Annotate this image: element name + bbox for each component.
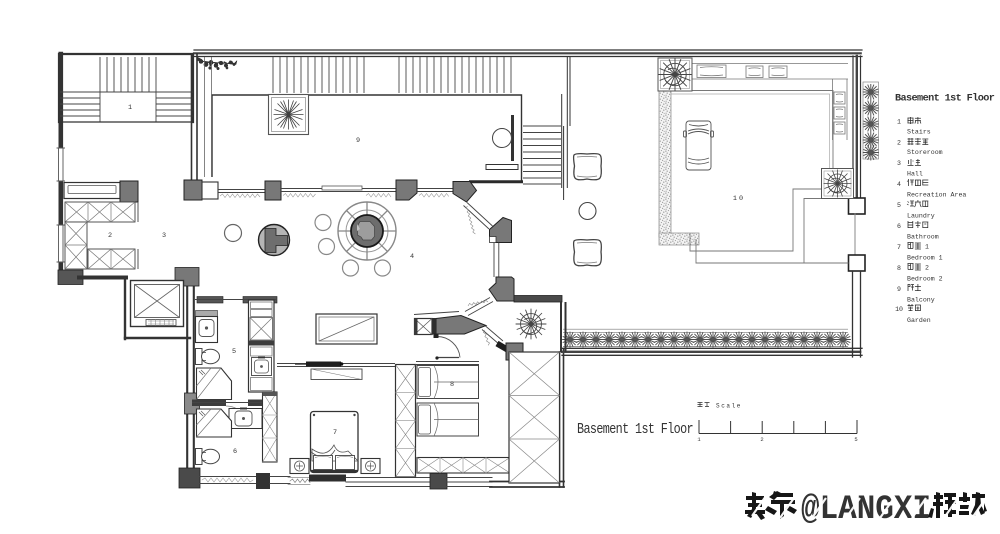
svg-text:2: 2 bbox=[760, 436, 763, 443]
svg-text:Bedroom 1: Bedroom 1 bbox=[907, 255, 943, 262]
svg-text:Garden: Garden bbox=[907, 317, 931, 324]
svg-text:5: 5 bbox=[897, 202, 901, 209]
svg-text:8: 8 bbox=[450, 381, 454, 389]
svg-text:7: 7 bbox=[333, 429, 337, 437]
svg-text:Stairs: Stairs bbox=[907, 129, 931, 136]
svg-text:7: 7 bbox=[897, 244, 901, 251]
svg-text:2: 2 bbox=[925, 265, 929, 272]
svg-text:2: 2 bbox=[897, 140, 901, 147]
svg-text:10: 10 bbox=[733, 195, 745, 203]
svg-text:5: 5 bbox=[232, 348, 236, 356]
svg-text:Balcony: Balcony bbox=[907, 297, 935, 304]
svg-text:2: 2 bbox=[108, 232, 112, 240]
svg-text:1: 1 bbox=[128, 104, 132, 112]
svg-text:Storeroom: Storeroom bbox=[907, 149, 943, 156]
svg-text:@LANGXI: @LANGXI bbox=[801, 491, 931, 529]
svg-text:3: 3 bbox=[162, 232, 166, 240]
svg-text:Scale: Scale bbox=[716, 403, 742, 410]
svg-text:Bathroom: Bathroom bbox=[907, 234, 939, 241]
svg-text:9: 9 bbox=[356, 137, 360, 145]
svg-text:Laundry: Laundry bbox=[907, 213, 935, 220]
svg-text:Recreation Area: Recreation Area bbox=[907, 192, 966, 199]
svg-text:3: 3 bbox=[897, 160, 901, 167]
svg-text:1: 1 bbox=[925, 244, 929, 251]
svg-text:5: 5 bbox=[854, 436, 857, 443]
svg-text:10: 10 bbox=[895, 306, 903, 313]
svg-text:4: 4 bbox=[897, 181, 901, 188]
svg-text:1: 1 bbox=[897, 119, 901, 126]
svg-text:Basement 1st Floor: Basement 1st Floor bbox=[577, 420, 693, 438]
svg-text:4: 4 bbox=[410, 253, 414, 261]
svg-text:Basement 1st Floor: Basement 1st Floor bbox=[895, 93, 995, 105]
svg-text:6: 6 bbox=[897, 223, 901, 230]
svg-text:8: 8 bbox=[897, 265, 901, 272]
svg-text:Hall: Hall bbox=[907, 171, 923, 178]
svg-text:Bedroom 2: Bedroom 2 bbox=[907, 276, 943, 283]
svg-text:9: 9 bbox=[897, 286, 901, 293]
svg-text:6: 6 bbox=[233, 448, 237, 456]
